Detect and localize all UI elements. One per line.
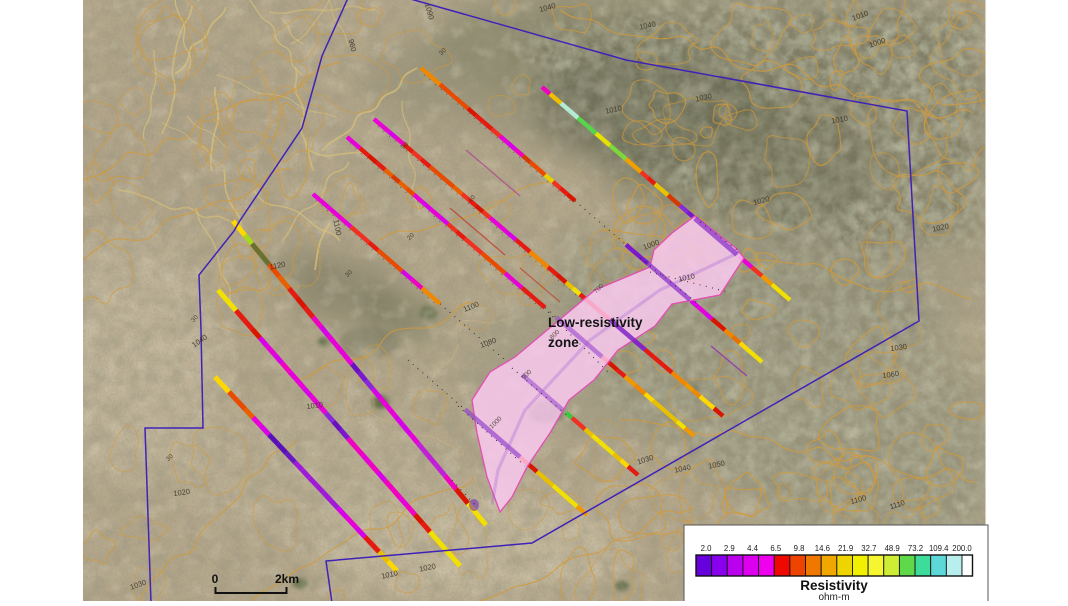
svg-text:Resistivity: Resistivity	[800, 578, 868, 593]
svg-text:21.9: 21.9	[838, 544, 853, 553]
svg-text:48.9: 48.9	[885, 544, 900, 553]
svg-text:200.0: 200.0	[952, 544, 972, 553]
svg-text:2km: 2km	[275, 572, 299, 586]
svg-text:109.4: 109.4	[929, 544, 949, 553]
svg-text:2.9: 2.9	[724, 544, 735, 553]
svg-text:32.7: 32.7	[861, 544, 876, 553]
svg-text:9.8: 9.8	[794, 544, 805, 553]
svg-text:zone: zone	[548, 335, 579, 350]
svg-text:6.5: 6.5	[770, 544, 782, 553]
svg-text:2.0: 2.0	[701, 544, 713, 553]
svg-text:ohm-m: ohm-m	[818, 592, 849, 601]
svg-text:Low-resistivity: Low-resistivity	[548, 315, 643, 330]
svg-text:0: 0	[212, 572, 219, 586]
svg-text:73.2: 73.2	[908, 544, 923, 553]
svg-text:14.6: 14.6	[815, 544, 830, 553]
svg-text:4.4: 4.4	[747, 544, 759, 553]
